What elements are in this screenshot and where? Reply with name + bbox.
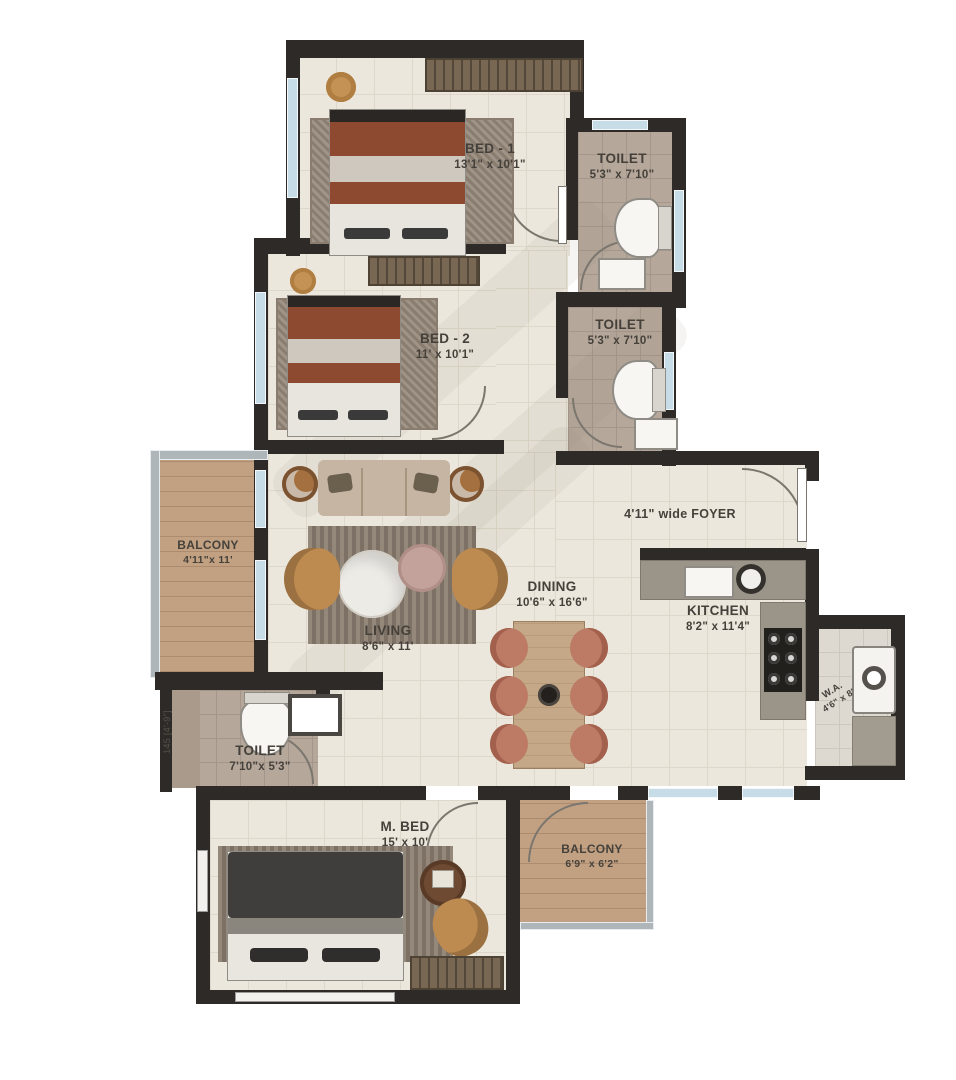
wa-shelf [852,716,896,766]
wall [618,786,648,800]
ottoman [398,544,446,592]
room-name: BALCONY [142,538,274,554]
wall [805,615,905,629]
wall [718,786,742,800]
dining-label: DINING 10'6" x 16'6" [482,578,622,610]
mbed-bay-window [235,992,395,1002]
bed1-window [287,78,298,198]
bed1-label: BED - 1 13'1" x 10'1" [420,140,560,172]
dimension-text: 145 [4'-9"] [162,710,172,754]
mbed-bed [228,852,403,980]
wall [805,451,819,481]
room-dims: 11' x 10'1" [375,348,515,363]
room-name: TOILET [552,150,692,168]
balcony-bottom-rail [520,922,654,930]
wall [556,451,819,465]
bed2-label: BED - 2 11' x 10'1" [375,330,515,362]
quilt [228,918,403,934]
sofa-seam [361,468,363,516]
room-dims: 8'2" x 11'4" [648,620,788,635]
bed2-window [255,292,266,404]
toilet1-wc [614,198,664,258]
floor-plan: BED - 1 13'1" x 10'1" TOILET 5'3" x 7'10… [0,0,956,1080]
bed2-bed [288,296,400,436]
wall [286,40,584,58]
living-label: LIVING 8'6" x 11' [318,622,458,654]
foyer-label: 4'11" wide FOYER [585,506,775,522]
mbed-wardrobe [410,956,504,990]
wall [254,440,504,454]
room-dims: 8'6" x 11' [318,640,458,655]
toilet1-sink [598,258,646,290]
balcony-left-rail [150,450,268,460]
wall [805,766,905,780]
pillow [298,410,338,420]
room-dims: 7'10"x 5'3" [190,760,330,775]
kitchen-counter [640,560,806,600]
toilet1-side-window [674,190,684,272]
dining-chair [570,724,608,764]
toilet3-sink [288,694,342,736]
kitchen-label: KITCHEN 8'2" x 11'4" [648,602,788,634]
bed1-door [558,186,567,244]
bed1-wardrobe [425,58,583,92]
toilet1-label: TOILET 5'3" x 7'10" [552,150,692,182]
dining-chair [570,628,608,668]
room-name: BED - 1 [420,140,560,158]
toilet2-cistern [652,368,666,412]
pillow [322,948,380,962]
toilet1-cistern [658,206,672,250]
room-name: 4'11" wide FOYER [624,507,736,521]
room-name: LIVING [318,622,458,640]
room-name: BALCONY [522,842,662,858]
living-side-table [282,466,318,502]
balcony-bottom-label: BALCONY 6'9" x 6'2" [522,842,662,871]
pillow [250,948,308,962]
room-name: KITCHEN [648,602,788,620]
entry-door [797,468,807,542]
dining-chair [490,724,528,764]
room-dims: 6'9" x 6'2" [522,858,662,872]
kitchen-sink [684,566,734,598]
balcony-left-label: BALCONY 4'11"x 11' [142,538,274,567]
room-dims: 10'6" x 16'6" [482,596,622,611]
room-dims: 5'3" x 7'10" [552,168,692,183]
dining-chair [490,676,528,716]
living-side-table [448,466,484,502]
room-name: BED - 2 [375,330,515,348]
room-dims: 13'1" x 10'1" [420,158,560,173]
wall [805,629,819,701]
bed2-plant [290,268,316,294]
dining-chair [490,628,528,668]
armchair [284,548,340,610]
pillow [348,410,388,420]
room-dims: 4'11"x 11' [142,554,274,568]
room-name: M. BED [335,818,475,836]
pillow [344,228,390,239]
toilet2-label: TOILET 5'3" x 7'10" [550,316,690,348]
sofa-seam [405,468,407,516]
room-dims: 5'3" x 7'10" [550,334,690,349]
blanket [288,363,400,383]
toilet3-label: TOILET 7'10"x 5'3" [190,742,330,774]
wall [794,786,820,800]
wall-dimension-label: 145 [4'-9"] [162,686,174,778]
toilet1-window [592,120,648,130]
balcony-left-glass-door [255,470,266,528]
room-dims: 15' x 10' [335,836,475,851]
wall [506,796,520,1004]
throw-pillow [327,472,353,493]
bed1-bed [330,110,465,255]
room-name: DINING [482,578,622,596]
headboard [330,110,465,122]
throw-pillow [413,472,440,494]
dining-chair [570,676,608,716]
coffee-table [338,550,406,618]
kitchen-window [742,788,794,798]
toilet2-sink [634,418,678,450]
wall [196,786,426,800]
balcony-left-glass [255,560,266,640]
stove [764,628,802,692]
toilet3-cistern [244,692,290,704]
room-name: TOILET [190,742,330,760]
living-sofa [318,460,450,516]
book [432,870,454,888]
bed1-plant [326,72,356,102]
wall [640,548,806,560]
wall [155,672,383,690]
bed2-wardrobe [368,256,480,286]
mbed-label: M. BED 15' x 10' [335,818,475,850]
vase [538,684,560,706]
faucet [736,564,766,594]
mbed-side-window [197,850,208,912]
blanket [330,182,465,204]
room-name: TOILET [550,316,690,334]
blanket [228,852,403,918]
headboard [288,296,400,307]
dining-window [648,788,718,798]
pillow [402,228,448,239]
